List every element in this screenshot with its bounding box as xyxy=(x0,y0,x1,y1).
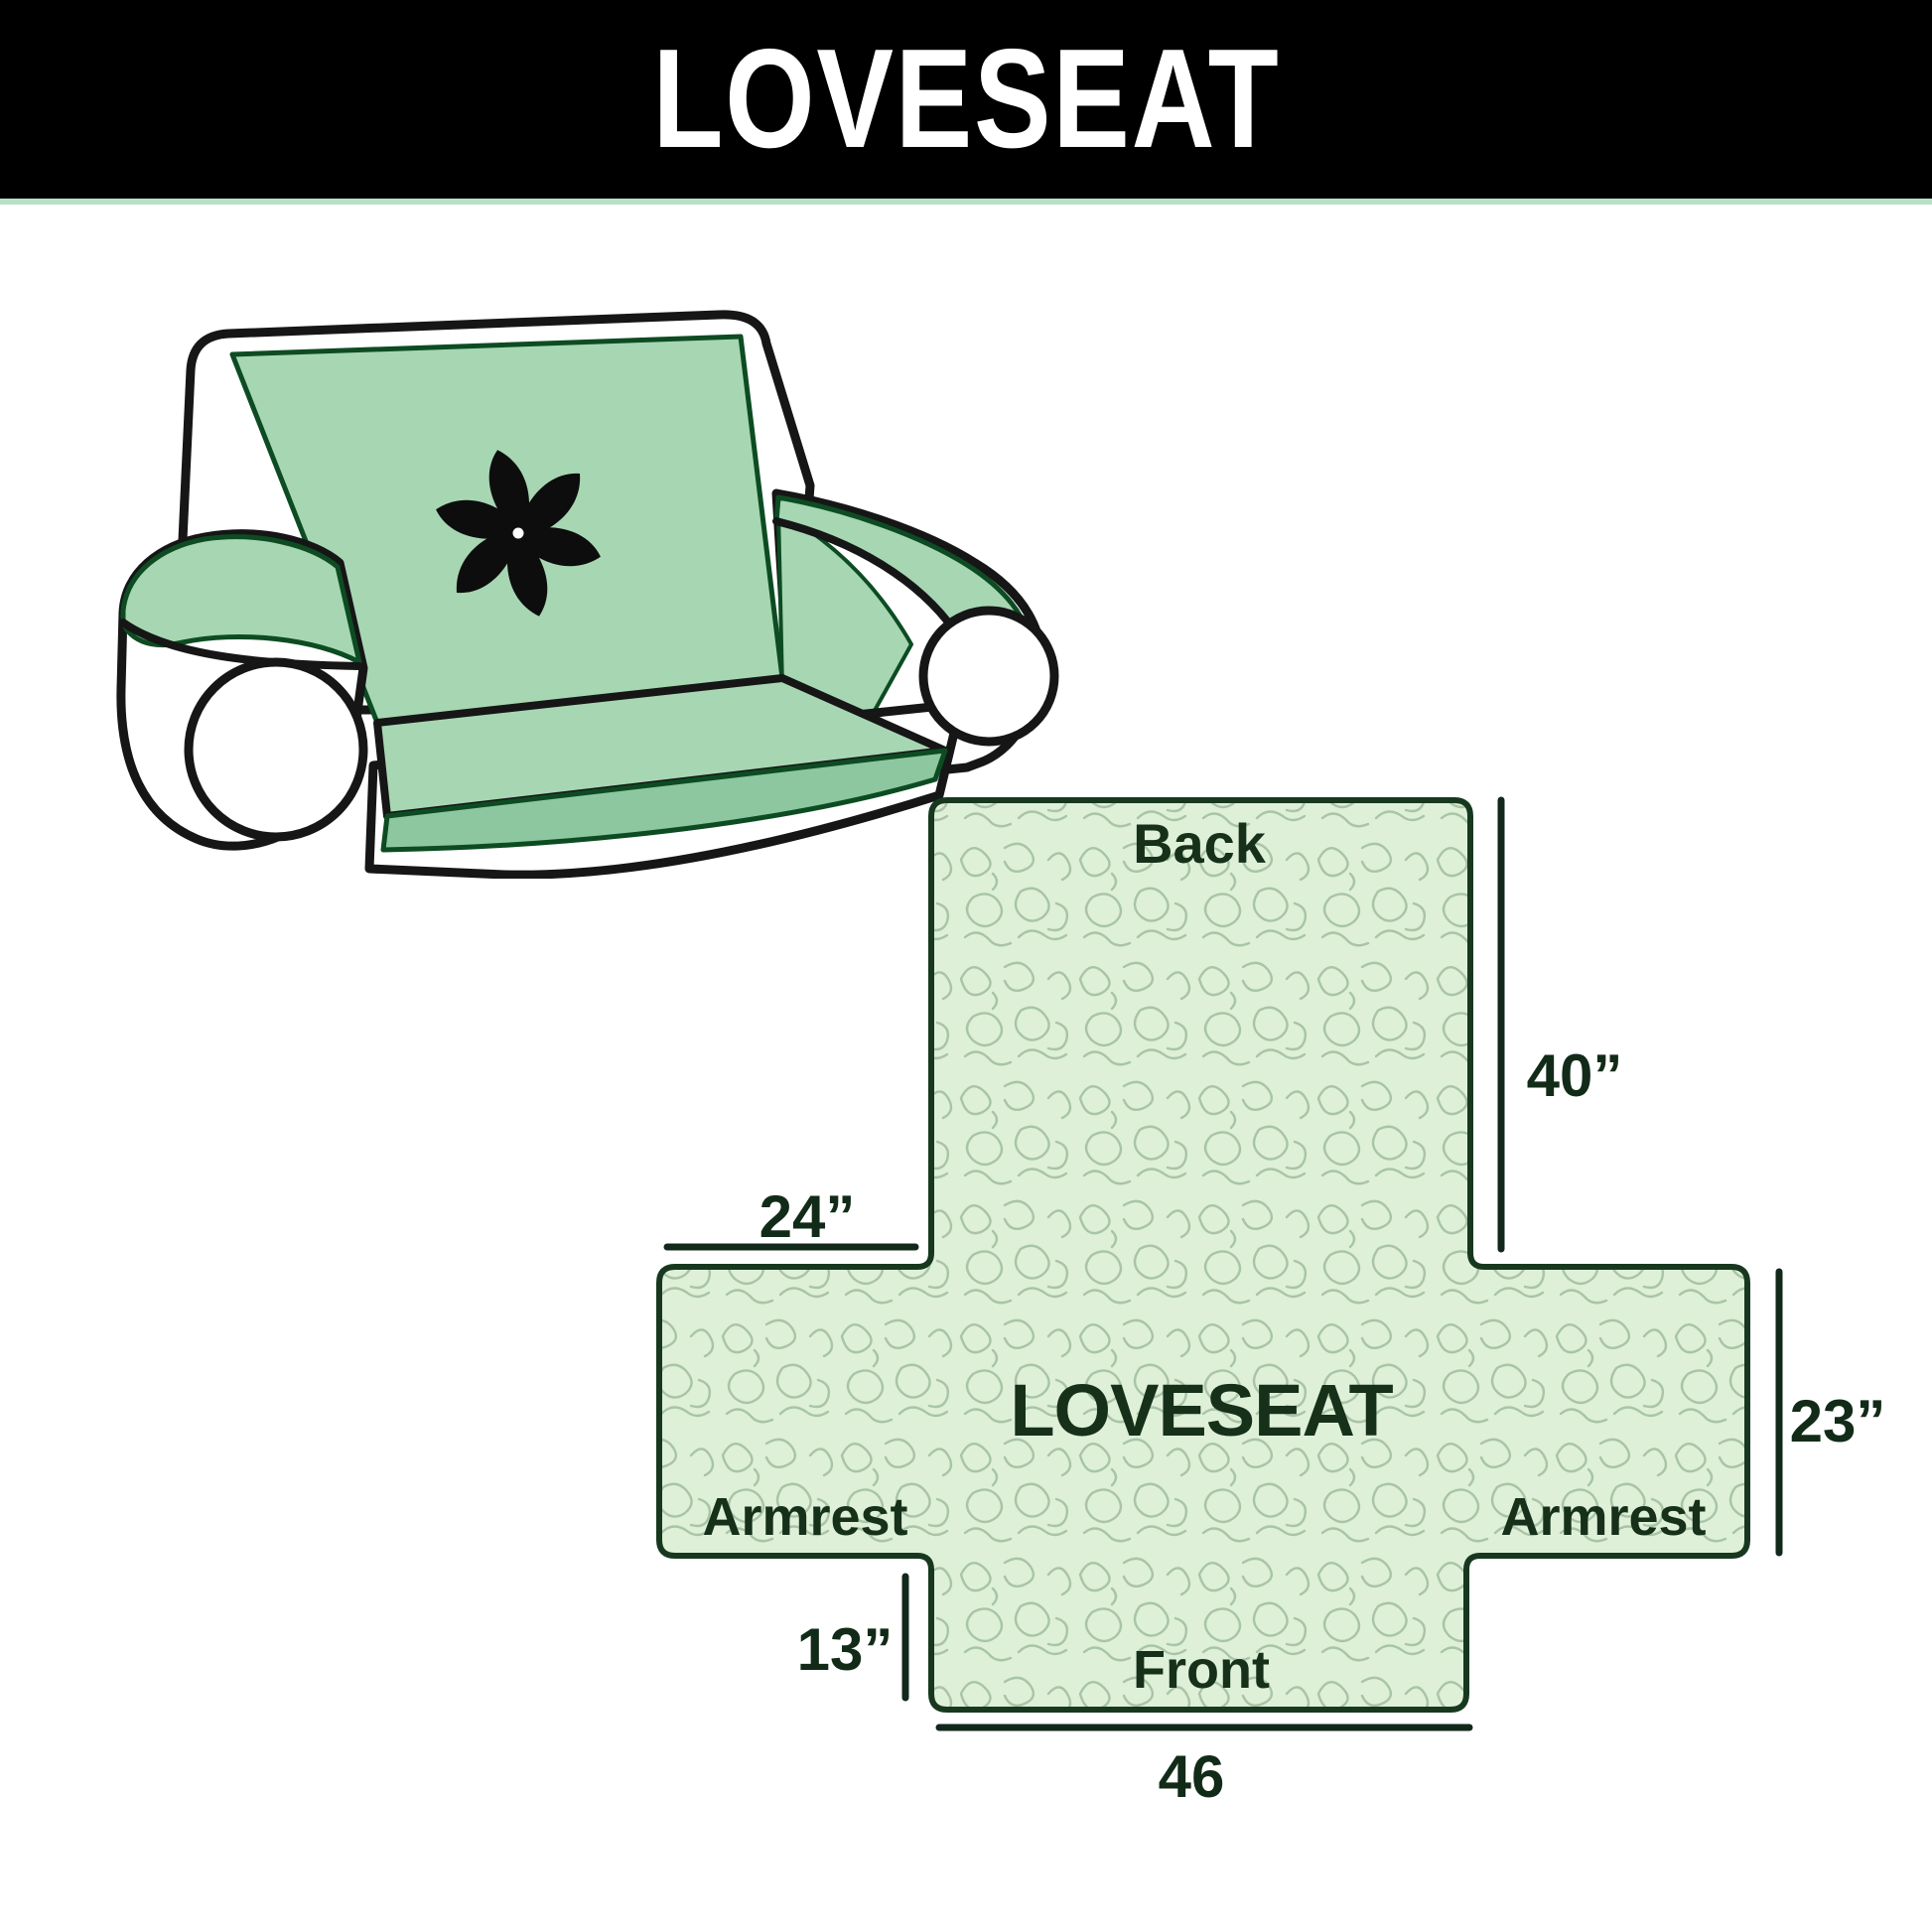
product-label: LOVESEAT xyxy=(1010,1369,1393,1451)
cover-dimension-diagram: Back LOVESEAT Armrest Armrest Front 40” … xyxy=(0,0,1932,1932)
armrest-left-label: Armrest xyxy=(702,1487,907,1547)
cover-outline-shape xyxy=(659,800,1747,1710)
dim-back-height-label: 40” xyxy=(1527,1042,1623,1109)
dim-front-width-label: 46 xyxy=(1159,1743,1225,1810)
front-label: Front xyxy=(1133,1640,1270,1700)
dim-armrest-height-label: 23” xyxy=(1790,1388,1886,1454)
armrest-right-label: Armrest xyxy=(1500,1487,1706,1547)
dim-armrest-width-label: 24” xyxy=(759,1183,856,1250)
back-label: Back xyxy=(1133,812,1267,875)
page: LOVESEAT xyxy=(0,0,1932,1932)
dim-front-drop-label: 13” xyxy=(797,1616,894,1683)
